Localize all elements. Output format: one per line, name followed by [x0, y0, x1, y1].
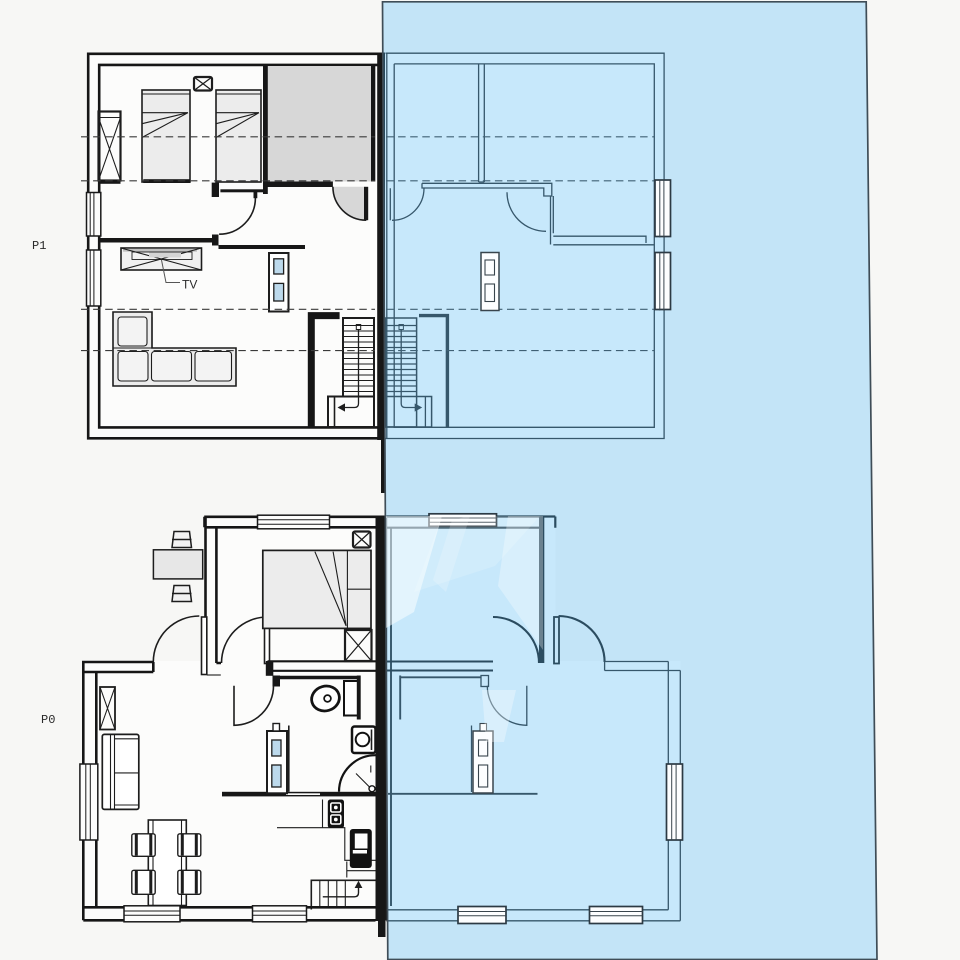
svg-text:P0: P0: [41, 713, 55, 727]
svg-text:P1: P1: [32, 239, 46, 253]
svg-text:TV: TV: [182, 278, 197, 292]
